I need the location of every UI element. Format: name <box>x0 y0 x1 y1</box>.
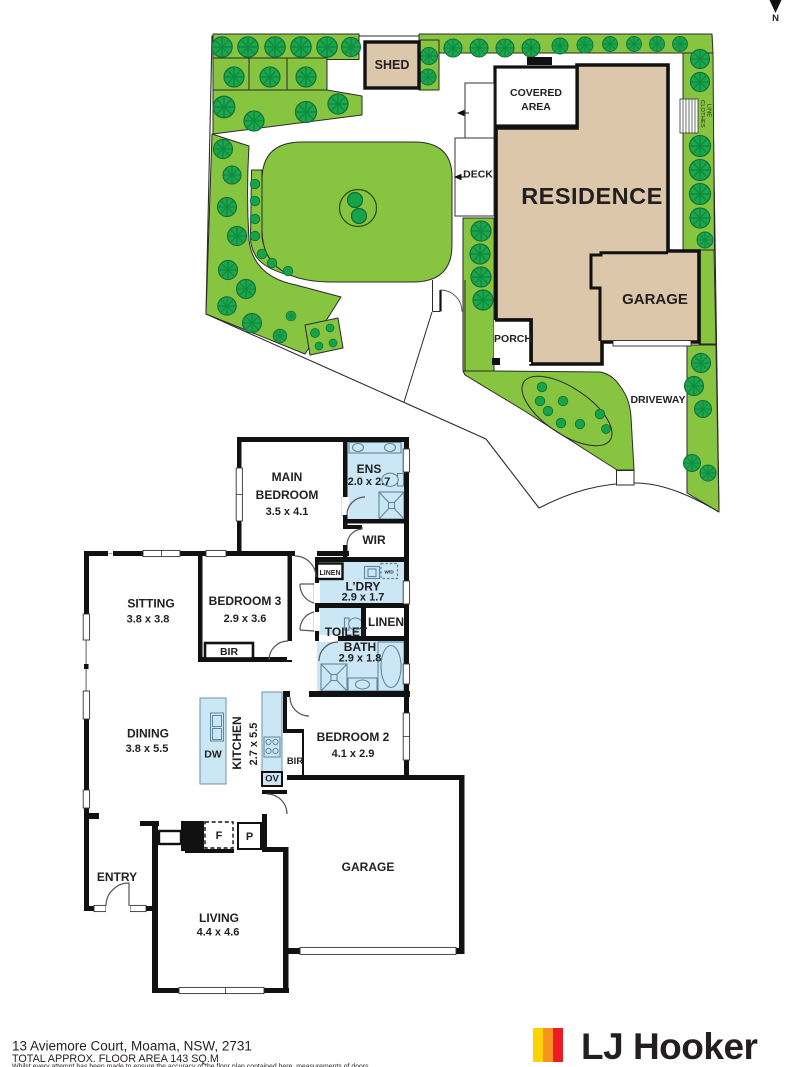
svg-text:2.9 x 3.6: 2.9 x 3.6 <box>224 613 267 625</box>
svg-text:DRIVEWAY: DRIVEWAY <box>630 394 685 406</box>
svg-text:SITTING: SITTING <box>127 597 174 611</box>
svg-text:4.4 x 4.6: 4.4 x 4.6 <box>197 927 240 939</box>
svg-text:3.5 x 4.1: 3.5 x 4.1 <box>266 506 309 518</box>
svg-text:DINING: DINING <box>127 727 169 741</box>
svg-text:WIR: WIR <box>362 533 386 547</box>
svg-text:OV: OV <box>265 774 279 785</box>
svg-text:LIVING: LIVING <box>199 911 239 925</box>
svg-text:GARAGE: GARAGE <box>342 860 395 874</box>
svg-text:TOILET: TOILET <box>325 625 368 639</box>
svg-text:4.1 x 2.9: 4.1 x 2.9 <box>332 748 375 760</box>
svg-text:LINEN: LINEN <box>320 570 341 577</box>
svg-text:2.9 x 1.7: 2.9 x 1.7 <box>342 592 385 604</box>
svg-text:BIR: BIR <box>220 646 239 658</box>
svg-text:DW: DW <box>204 749 222 761</box>
svg-text:LJ Hooker: LJ Hooker <box>581 1026 758 1067</box>
svg-text:SHED: SHED <box>375 58 410 72</box>
svg-text:2.7 x 5.5: 2.7 x 5.5 <box>248 723 260 766</box>
svg-text:2.0 x 2.7: 2.0 x 2.7 <box>348 476 391 488</box>
svg-text:LINE: LINE <box>706 104 712 117</box>
svg-text:COVERED: COVERED <box>510 87 562 99</box>
svg-text:BEDROOM 2: BEDROOM 2 <box>317 730 390 744</box>
svg-text:KITCHEN: KITCHEN <box>230 716 244 769</box>
svg-text:Whilst every attempt has been: Whilst every attempt has been made to en… <box>12 1064 369 1067</box>
svg-text:CLOTHES: CLOTHES <box>699 100 705 128</box>
svg-text:LINEN: LINEN <box>368 615 404 629</box>
svg-text:RESIDENCE: RESIDENCE <box>521 183 663 209</box>
svg-text:GARAGE: GARAGE <box>622 291 688 308</box>
svg-text:ENS: ENS <box>357 462 382 476</box>
svg-text:AREA: AREA <box>521 101 551 113</box>
svg-text:F: F <box>216 830 223 842</box>
svg-text:P: P <box>246 831 253 843</box>
svg-text:DECK: DECK <box>463 169 493 181</box>
svg-text:PORCH: PORCH <box>494 333 532 345</box>
svg-text:N: N <box>772 13 779 24</box>
svg-text:3.8 x 5.5: 3.8 x 5.5 <box>126 743 169 755</box>
svg-text:2.9 x 1.8: 2.9 x 1.8 <box>339 653 382 665</box>
svg-text:13 Aviemore Court, Moama, NSW,: 13 Aviemore Court, Moama, NSW, 2731 <box>12 1039 252 1054</box>
svg-text:BEDROOM 3: BEDROOM 3 <box>209 594 282 608</box>
svg-text:W/D: W/D <box>384 570 394 576</box>
svg-text:MAIN: MAIN <box>272 470 303 484</box>
svg-text:BEDROOM: BEDROOM <box>256 488 319 502</box>
svg-text:ENTRY: ENTRY <box>97 870 137 884</box>
svg-text:BIR: BIR <box>287 756 304 767</box>
svg-text:3.8 x 3.8: 3.8 x 3.8 <box>127 614 170 626</box>
